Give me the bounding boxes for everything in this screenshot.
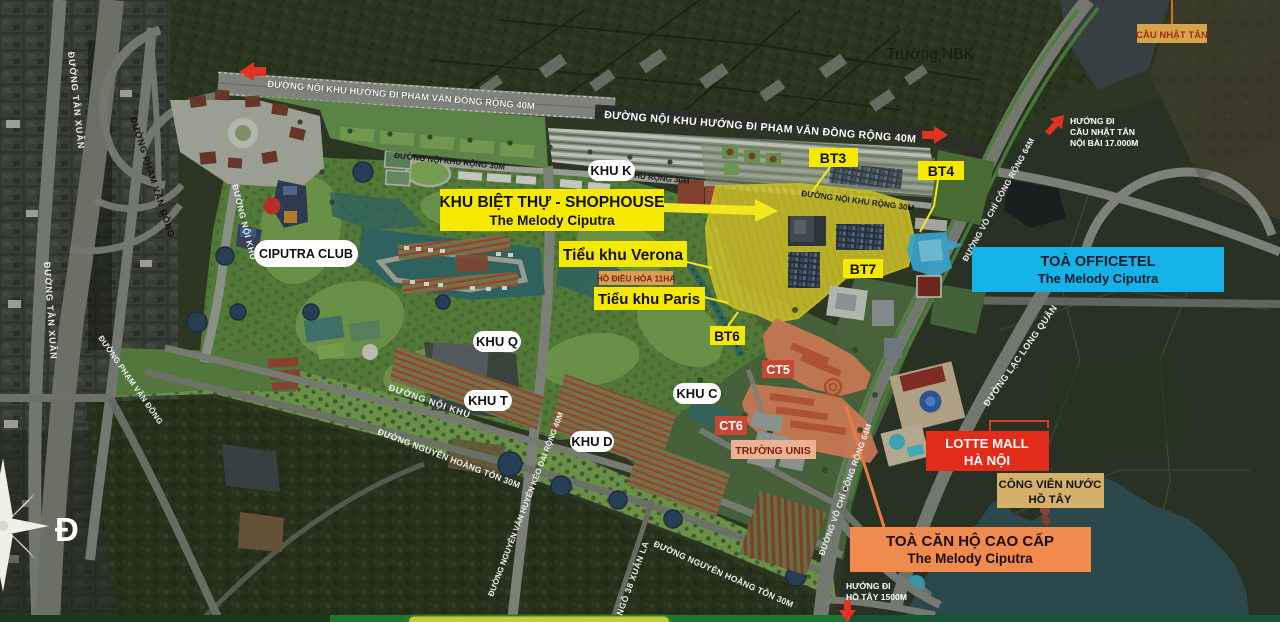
svg-text:Đ: Đ: [55, 511, 79, 548]
svg-text:KHU C: KHU C: [676, 386, 718, 401]
svg-text:KHU BIỆT THỰ - SHOPHOUSE: KHU BIỆT THỰ - SHOPHOUSE: [439, 192, 664, 211]
svg-text:CT5: CT5: [766, 363, 790, 377]
svg-text:HỒ ĐIỀU HÒA 11HA: HỒ ĐIỀU HÒA 11HA: [597, 273, 676, 284]
svg-text:Tiểu khu Paris: Tiểu khu Paris: [598, 291, 700, 308]
svg-text:HƯỚNG ĐI: HƯỚNG ĐI: [1070, 115, 1115, 126]
svg-text:BT4: BT4: [928, 163, 955, 179]
svg-text:BT7: BT7: [850, 261, 877, 277]
svg-text:CT6: CT6: [719, 419, 743, 433]
svg-text:TRƯỜNG UNIS: TRƯỜNG UNIS: [735, 444, 810, 457]
svg-text:BT6: BT6: [714, 329, 740, 344]
svg-text:KHU T: KHU T: [468, 393, 508, 408]
svg-text:CẦU NHẬT TÂN: CẦU NHẬT TÂN: [1136, 29, 1208, 41]
svg-text:HƯỚNG ĐI: HƯỚNG ĐI: [846, 580, 891, 591]
svg-text:LOTTE MALL: LOTTE MALL: [945, 436, 1029, 451]
svg-text:KHU Q: KHU Q: [476, 334, 518, 349]
svg-text:TOÀ CĂN HỘ CAO CẤP: TOÀ CĂN HỘ CAO CẤP: [886, 532, 1054, 550]
svg-text:BT3: BT3: [820, 150, 847, 166]
svg-text:KHU D: KHU D: [571, 434, 612, 449]
svg-text:Trường NBK: Trường NBK: [886, 46, 975, 63]
svg-text:HỒ TÂY 1500M: HỒ TÂY 1500M: [846, 591, 907, 602]
svg-text:HÀ NỘI: HÀ NỘI: [964, 453, 1010, 468]
svg-text:CÔNG VIÊN NƯỚC: CÔNG VIÊN NƯỚC: [999, 478, 1102, 491]
svg-text:The Melody Ciputra: The Melody Ciputra: [907, 551, 1033, 566]
svg-text:HỒ TÂY: HỒ TÂY: [1028, 493, 1071, 506]
svg-text:NỘI BÀI 17.000M: NỘI BÀI 17.000M: [1070, 137, 1138, 148]
svg-text:The Melody Ciputra: The Melody Ciputra: [1038, 271, 1159, 286]
svg-text:Tiểu khu Verona: Tiểu khu Verona: [563, 246, 683, 264]
svg-text:CIPUTRA CLUB: CIPUTRA CLUB: [259, 247, 353, 261]
svg-text:CẦU NHẬT TÂN: CẦU NHẬT TÂN: [1070, 126, 1135, 137]
svg-text:TOÀ OFFICETEL: TOÀ OFFICETEL: [1041, 253, 1156, 270]
svg-text:KHU K: KHU K: [590, 163, 632, 178]
svg-text:The Melody Ciputra: The Melody Ciputra: [489, 213, 615, 228]
